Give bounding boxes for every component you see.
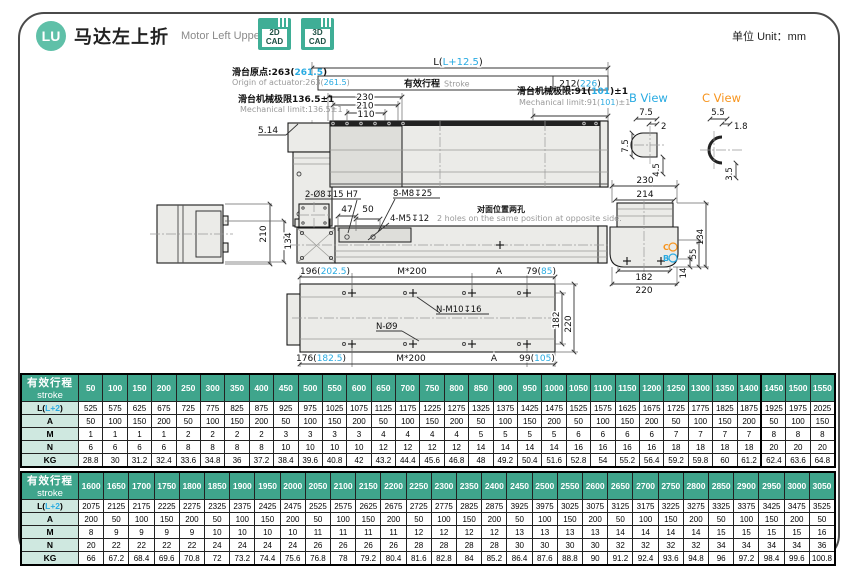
spec-cell: 7 <box>688 428 712 441</box>
spec-cell: 9 <box>179 526 204 539</box>
spec-cell: 50 <box>406 513 431 526</box>
spec-cell: 55.2 <box>615 454 639 468</box>
stroke-value: 1100 <box>591 374 615 402</box>
spec-cell: 150 <box>322 415 346 428</box>
row-label: A <box>21 415 79 428</box>
side-dim-55: 55 <box>689 249 699 260</box>
page-title-zh: 马达左上折 <box>74 23 169 49</box>
stroke-value: 3000 <box>784 472 809 500</box>
spec-cell: 34.8 <box>200 454 224 468</box>
cad-3d-button[interactable]: 3D CAD <box>301 18 334 50</box>
spec-cell: 36 <box>225 454 249 468</box>
spec-cell: 15 <box>784 526 809 539</box>
spec-cell: 1325 <box>469 402 493 415</box>
spec-row: N666688881010101012121212141414141616161… <box>21 441 835 454</box>
dim-a-bottom: A <box>491 354 498 364</box>
spec-cell: 62.4 <box>761 454 785 468</box>
mech-limit-right-en: Mechanical limit:91(101)±1 <box>519 98 630 107</box>
c-view-title: C View <box>702 91 741 105</box>
row-label: N <box>21 539 79 552</box>
stroke-value: 1900 <box>230 472 255 500</box>
dim-m200-top: M*200 <box>397 267 427 277</box>
stroke-value: 1150 <box>615 374 639 402</box>
spec-cell: 61.2 <box>737 454 761 468</box>
spec-cell: 12 <box>406 526 431 539</box>
cad-buttons: 2D CAD 3D CAD <box>258 18 334 50</box>
spec-cell: 50 <box>469 415 493 428</box>
spec-cell: 9 <box>104 526 129 539</box>
spec-cell: 1125 <box>371 402 395 415</box>
spec-cell: 30 <box>532 539 557 552</box>
spec-cell: 40.8 <box>322 454 346 468</box>
bottom-dim-182: 182 <box>552 311 562 328</box>
spec-cell: 30 <box>507 539 532 552</box>
stroke-value: 450 <box>274 374 298 402</box>
spec-cell: 79.2 <box>356 552 381 566</box>
spec-cell: 1925 <box>761 402 785 415</box>
spec-cell: 2225 <box>154 500 179 513</box>
spec-cell: 92.4 <box>633 552 658 566</box>
b-view-dim-right: 2 <box>661 122 666 132</box>
spec-cell: 2725 <box>406 500 431 513</box>
spec-cell: 51.6 <box>542 454 566 468</box>
spec-table-2: 有效行程stroke160016501700175018001850190019… <box>20 471 836 566</box>
spec-cell: 87.6 <box>532 552 557 566</box>
label-n-m10: N-M10↧16 <box>436 305 482 315</box>
spec-cell: 16 <box>566 441 590 454</box>
top-view: L(L+12.5) 有效行程 Stroke 212(226) 230 210 1… <box>232 57 630 234</box>
b-view-dim-left: 7.5 <box>621 139 631 153</box>
spec-cell: 8 <box>249 441 273 454</box>
spec-cell: 6 <box>639 428 663 441</box>
spec-cell: 6 <box>127 441 151 454</box>
spec-cell: 18 <box>688 441 712 454</box>
unit-label: 单位 Unit：mm <box>732 28 806 44</box>
stroke-value: 250 <box>176 374 200 402</box>
stroke-value: 300 <box>200 374 224 402</box>
spec-cell: 20 <box>761 441 785 454</box>
spec-cell: 150 <box>457 513 482 526</box>
spec-cell: 200 <box>639 415 663 428</box>
spec-cell: 1225 <box>420 402 444 415</box>
spec-cell: 48 <box>469 454 493 468</box>
spec-cell: 63.6 <box>786 454 810 468</box>
plan-dim-134: 134 <box>284 232 294 249</box>
stroke-value: 600 <box>347 374 371 402</box>
dim-5-14: 5.14 <box>258 126 278 136</box>
spec-cell: 56.4 <box>639 454 663 468</box>
spec-cell: 18 <box>664 441 688 454</box>
side-view: 230 214 C B 14 55 <box>610 176 709 296</box>
spec-cell: 32 <box>658 539 683 552</box>
spec-cell: 3 <box>347 428 371 441</box>
spec-cell: 1525 <box>566 402 590 415</box>
spec-cell: 1875 <box>737 402 761 415</box>
spec-cell: 10 <box>322 441 346 454</box>
spec-cell: 37.2 <box>249 454 273 468</box>
spec-cell: 15 <box>759 526 784 539</box>
spec-cell: 10 <box>230 526 255 539</box>
stroke-value: 2650 <box>608 472 633 500</box>
spec-cell: 50 <box>664 415 688 428</box>
label-8-m8: 8-M8↧25 <box>393 189 432 199</box>
spec-cell: 32.4 <box>152 454 176 468</box>
spec-cell: 1 <box>152 428 176 441</box>
spec-cell: 6 <box>591 428 615 441</box>
spec-cell: 50 <box>176 415 200 428</box>
spec-cell: 150 <box>557 513 582 526</box>
spec-cell: 2075 <box>79 500 104 513</box>
label-n-o9: N-Ø9 <box>376 321 398 332</box>
spec-tables: 有效行程stroke501001502002503003504004505005… <box>20 373 836 569</box>
row-label: L(L+2) <box>21 500 79 513</box>
spec-table-1: 有效行程stroke501001502002503003504004505005… <box>20 373 836 468</box>
stroke-value: 550 <box>322 374 346 402</box>
spec-cell: 1475 <box>542 402 566 415</box>
spec-cell: 33.6 <box>176 454 200 468</box>
spec-cell: 22 <box>104 539 129 552</box>
spec-cell: 7 <box>664 428 688 441</box>
dim-99: 99(105) <box>519 354 555 364</box>
spec-cell: 50 <box>371 415 395 428</box>
spec-cell: 50 <box>104 513 129 526</box>
stroke-value: 2700 <box>633 472 658 500</box>
plan-dim-47: 47 <box>341 205 352 215</box>
spec-cell: 18 <box>737 441 761 454</box>
stroke-value: 1950 <box>255 472 280 500</box>
spec-cell: 74.4 <box>255 552 280 566</box>
spec-cell: 11 <box>381 526 406 539</box>
spec-cell: 32 <box>608 539 633 552</box>
spec-cell: 22 <box>129 539 154 552</box>
spec-cell: 26 <box>305 539 330 552</box>
spec-cell: 30 <box>103 454 127 468</box>
spec-cell: 49.2 <box>493 454 517 468</box>
spec-cell: 45.6 <box>420 454 444 468</box>
label-4-m5: 4-M5↧12 <box>390 214 429 224</box>
spec-cell: 1 <box>127 428 151 441</box>
spec-row: L(L+2)5255756256757257758258759259751025… <box>21 402 835 415</box>
spec-cell: 150 <box>154 513 179 526</box>
dim-a-top: A <box>496 267 503 277</box>
row-label: KG <box>21 552 79 566</box>
spec-cell: 10 <box>298 441 322 454</box>
spec-cell: 98.4 <box>759 552 784 566</box>
spec-cell: 100 <box>431 513 456 526</box>
spec-cell: 15 <box>734 526 759 539</box>
stroke-value: 2950 <box>759 472 784 500</box>
stroke-label-zh: 有效行程 <box>404 78 440 90</box>
spec-cell: 32 <box>633 539 658 552</box>
spec-cell: 32 <box>683 539 708 552</box>
stroke-value: 2750 <box>658 472 683 500</box>
spec-cell: 3425 <box>759 500 784 513</box>
spec-cell: 10 <box>274 441 298 454</box>
stroke-value: 2800 <box>683 472 708 500</box>
mech-limit-left-zh: 滑台机械极限136.5±1 <box>238 93 334 105</box>
spec-cell: 50.4 <box>518 454 542 468</box>
spec-cell: 14 <box>658 526 683 539</box>
spec-cell: 525 <box>79 402 103 415</box>
stroke-value: 1050 <box>566 374 590 402</box>
spec-cell: 2375 <box>230 500 255 513</box>
spec-cell: 30 <box>583 539 608 552</box>
spec-cell: 675 <box>152 402 176 415</box>
side-dim-134: 134 <box>696 229 706 245</box>
spec-cell: 6 <box>103 441 127 454</box>
cad-2d-button[interactable]: 2D CAD <box>258 18 291 50</box>
spec-cell: 11 <box>356 526 381 539</box>
b-view-title: B View <box>629 91 668 105</box>
spec-cell: 12 <box>457 526 482 539</box>
spec-cell: 82.8 <box>431 552 456 566</box>
spec-cell: 14 <box>633 526 658 539</box>
spec-cell: 28.8 <box>79 454 103 468</box>
side-dim-14: 14 <box>679 268 689 279</box>
stroke-value: 3050 <box>809 472 835 500</box>
stroke-value: 1850 <box>205 472 230 500</box>
spec-cell: 2575 <box>331 500 356 513</box>
spec-cell: 2475 <box>280 500 305 513</box>
spec-cell: 100 <box>298 415 322 428</box>
spec-cell: 78 <box>331 552 356 566</box>
spec-cell: 50 <box>274 415 298 428</box>
spec-cell: 150 <box>759 513 784 526</box>
spec-cell: 200 <box>737 415 761 428</box>
spec-cell: 34 <box>784 539 809 552</box>
spec-cell: 150 <box>713 415 737 428</box>
side-dim-214: 214 <box>636 190 653 200</box>
spec-cell: 64.8 <box>810 454 835 468</box>
spec-cell: 14 <box>493 441 517 454</box>
stroke-value: 1700 <box>129 472 154 500</box>
spec-cell: 50 <box>709 513 734 526</box>
stroke-header-label: 有效行程stroke <box>21 472 79 500</box>
spec-cell: 150 <box>225 415 249 428</box>
spec-cell: 85.2 <box>482 552 507 566</box>
stroke-header-row: 有效行程stroke160016501700175018001850190019… <box>21 472 835 500</box>
spec-cell: 75.6 <box>280 552 305 566</box>
spec-cell: 16 <box>615 441 639 454</box>
stroke-value: 50 <box>79 374 103 402</box>
spec-cell: 100 <box>493 415 517 428</box>
stroke-value: 1400 <box>737 374 761 402</box>
spec-cell: 96 <box>709 552 734 566</box>
spec-cell: 775 <box>200 402 224 415</box>
spec-cell: 13 <box>507 526 532 539</box>
b-view: B View 7.5 2 7.5 4.5 <box>621 91 668 177</box>
spec-cell: 14 <box>469 441 493 454</box>
model-badge: LU <box>36 21 66 51</box>
spec-cell: 12 <box>396 441 420 454</box>
stroke-value: 1500 <box>786 374 810 402</box>
spec-cell: 30 <box>557 539 582 552</box>
stroke-value: 900 <box>493 374 517 402</box>
spec-row: N202222222224242424262626262828282830303… <box>21 539 835 552</box>
spec-cell: 875 <box>249 402 273 415</box>
spec-cell: 6 <box>79 441 103 454</box>
note-opposite-en: 2 holes on the same position at opposite… <box>437 214 622 223</box>
spec-cell: 3325 <box>709 500 734 513</box>
spec-cell: 100 <box>734 513 759 526</box>
spec-cell: 59.2 <box>664 454 688 468</box>
spec-cell: 2825 <box>457 500 482 513</box>
spec-cell: 81.6 <box>406 552 431 566</box>
spec-row: KG6667.268.469.670.87273.274.475.676.878… <box>21 552 835 566</box>
stroke-value: 2250 <box>406 472 431 500</box>
spec-cell: 7 <box>737 428 761 441</box>
spec-cell: 6 <box>615 428 639 441</box>
stroke-value: 500 <box>298 374 322 402</box>
c-view-dim-bottom: 3.5 <box>725 167 735 181</box>
spec-cell: 68.4 <box>129 552 154 566</box>
origin-label-en: Origin of actuator:263(261.5) <box>232 78 350 87</box>
spec-cell: 73.2 <box>230 552 255 566</box>
spec-cell: 52.8 <box>566 454 590 468</box>
stroke-value: 1000 <box>542 374 566 402</box>
spec-cell: 2325 <box>205 500 230 513</box>
spec-cell: 3025 <box>557 500 582 513</box>
spec-cell: 22 <box>179 539 204 552</box>
spec-cell: 50 <box>608 513 633 526</box>
dim-79: 79(85) <box>526 267 556 277</box>
spec-cell: 200 <box>482 513 507 526</box>
spec-cell: 5 <box>493 428 517 441</box>
spec-cell: 200 <box>179 513 204 526</box>
stroke-value: 2150 <box>356 472 381 500</box>
spec-cell: 8 <box>200 441 224 454</box>
spec-cell: 2025 <box>810 402 835 415</box>
stroke-value: 1550 <box>810 374 835 402</box>
spec-cell: 20 <box>810 441 835 454</box>
spec-cell: 67.2 <box>104 552 129 566</box>
b-view-dim-bottom: 4.5 <box>652 163 662 177</box>
spec-cell: 200 <box>152 415 176 428</box>
spec-cell: 24 <box>255 539 280 552</box>
spec-cell: 4 <box>396 428 420 441</box>
end-view-left: 210 134 <box>150 204 294 264</box>
spec-cell: 100 <box>532 513 557 526</box>
spec-cell: 38.4 <box>274 454 298 468</box>
spec-cell: 100 <box>688 415 712 428</box>
spec-cell: 200 <box>542 415 566 428</box>
stroke-value: 2200 <box>381 472 406 500</box>
stroke-value: 800 <box>444 374 468 402</box>
spec-cell: 200 <box>583 513 608 526</box>
spec-cell: 200 <box>280 513 305 526</box>
spec-cell: 1625 <box>615 402 639 415</box>
spec-cell: 10 <box>280 526 305 539</box>
spec-cell: 2 <box>249 428 273 441</box>
spec-cell: 2 <box>176 428 200 441</box>
mech-limit-right-zh: 滑台机械极限:91(101)±1 <box>517 85 628 97</box>
spec-cell: 5 <box>469 428 493 441</box>
spec-cell: 150 <box>356 513 381 526</box>
spec-cell: 24 <box>205 539 230 552</box>
spec-cell: 825 <box>225 402 249 415</box>
stroke-value: 2850 <box>709 472 734 500</box>
spec-cell: 2175 <box>129 500 154 513</box>
spec-cell: 16 <box>639 441 663 454</box>
spec-cell: 3 <box>322 428 346 441</box>
spec-cell: 3375 <box>734 500 759 513</box>
spec-cell: 150 <box>255 513 280 526</box>
spec-cell: 46.8 <box>444 454 468 468</box>
stroke-value: 2600 <box>583 472 608 500</box>
row-label: N <box>21 441 79 454</box>
spec-cell: 50 <box>507 513 532 526</box>
spec-cell: 625 <box>127 402 151 415</box>
spec-cell: 90 <box>583 552 608 566</box>
spec-cell: 14 <box>518 441 542 454</box>
spec-cell: 975 <box>298 402 322 415</box>
spec-row: KG28.83031.232.433.634.83637.238.439.640… <box>21 454 835 468</box>
stroke-value: 1450 <box>761 374 785 402</box>
plan-view: 47 50 2-Ø8↧15 H7 8-M8↧25 4-M5↧12 对面位置两孔 … <box>290 189 622 263</box>
stroke-value: 1250 <box>664 374 688 402</box>
spec-cell: 13 <box>583 526 608 539</box>
spec-cell: 12 <box>431 526 456 539</box>
spec-cell: 26 <box>381 539 406 552</box>
bottom-dim-220: 220 <box>564 315 574 332</box>
spec-cell: 12 <box>420 441 444 454</box>
spec-cell: 26 <box>331 539 356 552</box>
spec-cell: 200 <box>249 415 273 428</box>
spec-cell: 50 <box>305 513 330 526</box>
spec-cell: 3925 <box>507 500 532 513</box>
c-view-dim-top: 5.5 <box>711 108 725 118</box>
spec-cell: 2675 <box>381 500 406 513</box>
spec-cell: 100 <box>129 513 154 526</box>
stroke-value: 650 <box>371 374 395 402</box>
spec-cell: 86.4 <box>507 552 532 566</box>
spec-cell: 24 <box>280 539 305 552</box>
stroke-value: 2050 <box>305 472 330 500</box>
spec-cell: 84 <box>457 552 482 566</box>
spec-cell: 42 <box>347 454 371 468</box>
spec-cell: 50 <box>566 415 590 428</box>
dim-110: 110 <box>357 110 374 120</box>
spec-cell: 20 <box>79 539 104 552</box>
spec-cell: 14 <box>608 526 633 539</box>
stroke-value: 2100 <box>331 472 356 500</box>
spec-cell: 200 <box>683 513 708 526</box>
stroke-value: 2900 <box>734 472 759 500</box>
spec-cell: 8 <box>176 441 200 454</box>
spec-cell: 18 <box>713 441 737 454</box>
spec-cell: 28 <box>431 539 456 552</box>
stroke-value: 1300 <box>688 374 712 402</box>
c-view: C View 5.5 1.8 3.5 <box>700 91 748 181</box>
spec-cell: 200 <box>381 513 406 526</box>
spec-cell: 10 <box>255 526 280 539</box>
spec-cell: 70.8 <box>179 552 204 566</box>
spec-cell: 94.8 <box>683 552 708 566</box>
spec-cell: 100 <box>331 513 356 526</box>
spec-cell: 76.8 <box>305 552 330 566</box>
spec-cell: 6 <box>152 441 176 454</box>
spec-cell: 1425 <box>518 402 542 415</box>
spec-cell: 34 <box>759 539 784 552</box>
spec-cell: 3475 <box>784 500 809 513</box>
spec-cell: 3225 <box>658 500 683 513</box>
stroke-value: 200 <box>152 374 176 402</box>
spec-cell: 13 <box>532 526 557 539</box>
spec-cell: 6 <box>566 428 590 441</box>
spec-cell: 31.2 <box>127 454 151 468</box>
spec-cell: 2525 <box>305 500 330 513</box>
origin-label-zh: 滑台原点:263(261.5) <box>232 66 327 78</box>
